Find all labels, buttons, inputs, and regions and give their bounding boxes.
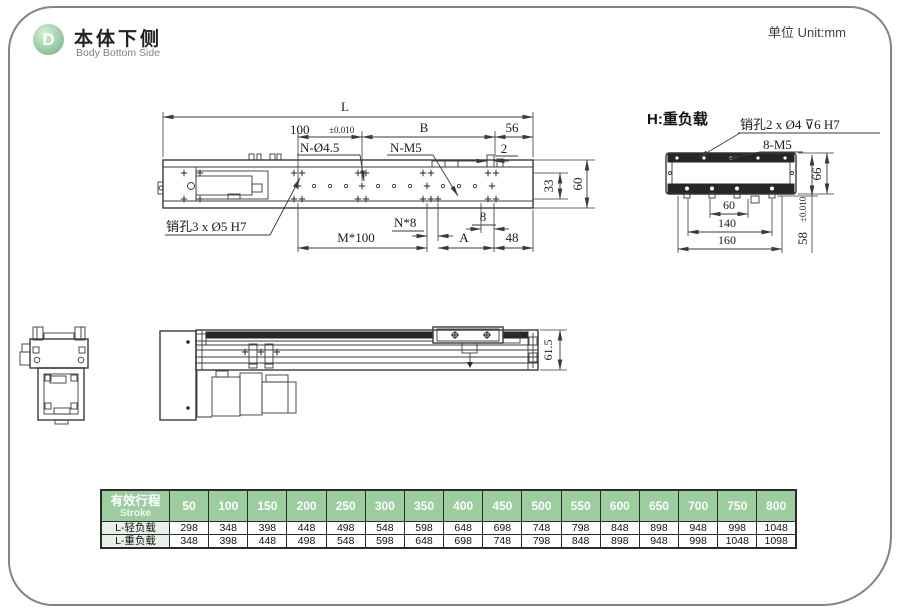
stroke-table-header-row: 有效行程 Stroke 5010015020025030035040045050… [101,490,796,522]
dim-100-tol: ±0.010 [329,125,355,135]
side-view: 61.5 [160,327,567,420]
stroke-col-200: 200 [287,490,326,522]
stroke-value: 998 [679,535,718,549]
dim-160: 160 [718,233,736,247]
stroke-col-500: 500 [522,490,561,522]
stroke-row-label: L-重负载 [101,535,170,549]
stroke-table-body: L-轻负载29834839844849854859864869874879884… [101,522,796,549]
stroke-value: 798 [522,535,561,549]
hole-pattern [291,170,499,202]
stroke-value: 898 [639,522,678,535]
stroke-col-100: 100 [209,490,248,522]
dim-2: 2 [501,141,508,156]
stroke-value: 348 [209,522,248,535]
dim-A: A [459,230,469,245]
stroke-col-300: 300 [365,490,404,522]
label-pin-holes: 销孔3 x Ø5 H7 [166,219,247,234]
stroke-value: 1048 [718,535,757,549]
stroke-value: 648 [404,535,443,549]
stroke-col-150: 150 [248,490,287,522]
stroke-value: 598 [365,535,404,549]
stroke-col-350: 350 [404,490,443,522]
dim-48: 48 [506,230,519,245]
dim-B: B [420,120,429,135]
catalog-page: D 本体下侧 Body Bottom Side 单位 Unit:mm H:重负载 [0,0,898,611]
stroke-value: 848 [600,522,639,535]
stroke-col-800: 800 [757,490,796,522]
end-view [20,327,88,424]
stroke-value: 498 [326,522,365,535]
dim-58-tol: ±0.010 [798,196,808,222]
stroke-value: 798 [561,522,600,535]
stroke-col-550: 550 [561,490,600,522]
stroke-col-700: 700 [679,490,718,522]
stroke-row-label: L-轻负载 [101,522,170,535]
stroke-col-50: 50 [170,490,209,522]
stroke-header-en: Stroke [102,508,169,519]
stroke-value: 448 [248,535,287,549]
stroke-col-450: 450 [483,490,522,522]
label-n-holes: N-Ø4.5 [300,140,339,155]
stroke-col-750: 750 [718,490,757,522]
stroke-table: 有效行程 Stroke 5010015020025030035040045050… [100,489,797,549]
stroke-value: 398 [248,522,287,535]
stroke-row: L-轻负载29834839844849854859864869874879884… [101,522,796,535]
dim-66: 66 [809,167,824,181]
dim-m100: M*100 [337,230,375,245]
stroke-value: 398 [209,535,248,549]
stroke-value: 848 [561,535,600,549]
dim-n8: N*8 [394,215,416,230]
stroke-col-600: 600 [600,490,639,522]
dim-L: L [341,99,349,114]
stroke-value: 1098 [757,535,796,549]
stroke-value: 1048 [757,522,796,535]
stroke-value: 898 [600,535,639,549]
dim-56: 56 [506,120,520,135]
stroke-row: L-重负载34839844849854859864869874879884889… [101,535,796,549]
stroke-value: 548 [365,522,404,535]
stroke-value: 348 [170,535,209,549]
stroke-value: 498 [287,535,326,549]
stroke-value: 698 [483,522,522,535]
label-pin-holes-heavy: 销孔2 x Ø4 ⊽6 H7 [740,117,840,132]
stroke-value: 648 [444,522,483,535]
dim-58: 58 [795,232,810,245]
label-8-m5: 8-M5 [763,137,792,152]
heavy-load-view: 销孔2 x Ø4 ⊽6 H7 8-M5 66 58 ±0.010 60 140 … [666,117,880,253]
dim-140: 140 [718,216,736,230]
stroke-col-650: 650 [639,490,678,522]
dim-8: 8 [480,209,487,224]
stroke-value: 948 [679,522,718,535]
stroke-header-cell: 有效行程 Stroke [101,490,170,522]
stroke-value: 948 [639,535,678,549]
stroke-value: 598 [404,522,443,535]
dim-100: 100 [290,122,310,137]
stroke-value: 748 [522,522,561,535]
stroke-header-zh: 有效行程 [102,494,169,508]
dim-60-heavy: 60 [723,198,735,212]
stroke-value: 748 [483,535,522,549]
stroke-value: 298 [170,522,209,535]
main-bottom-view: L 100 ±0.010 B 56 2 33 60 N-Ø4.5 N-M5 销孔… [158,99,595,252]
stroke-col-400: 400 [444,490,483,522]
dim-33: 33 [541,180,556,193]
dim-61-5: 61.5 [541,340,555,361]
stroke-value: 448 [287,522,326,535]
stroke-col-250: 250 [326,490,365,522]
label-n-m5: N-M5 [390,140,422,155]
stroke-value: 548 [326,535,365,549]
dim-60: 60 [570,178,585,191]
stroke-value: 998 [718,522,757,535]
stroke-value: 698 [444,535,483,549]
